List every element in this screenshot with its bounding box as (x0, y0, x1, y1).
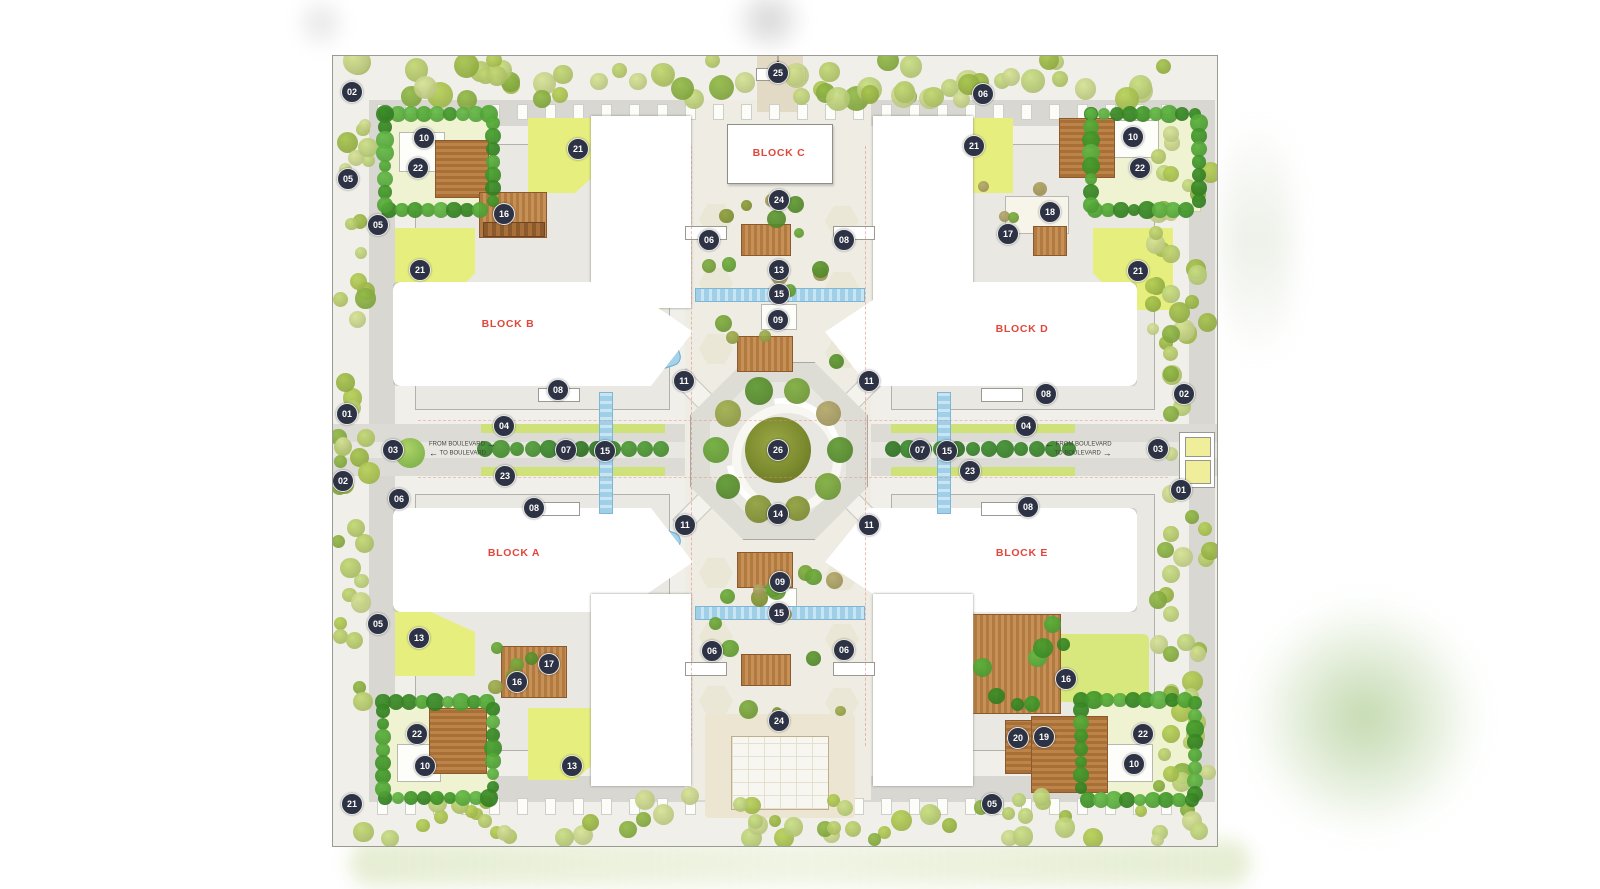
marker-10: 10 (1122, 126, 1144, 148)
tree-icon (1192, 194, 1205, 207)
tree-icon (1074, 742, 1087, 755)
tree-icon (1201, 542, 1218, 561)
tree-icon (336, 373, 355, 392)
marker-05: 05 (337, 168, 359, 190)
east-gatehouse (1185, 460, 1211, 484)
axis-dashed-line (865, 146, 866, 746)
marker-11: 11 (673, 370, 695, 392)
tree-icon (377, 718, 389, 730)
tree-icon (1002, 807, 1015, 820)
pavilion-deck (1033, 226, 1067, 256)
marker-06: 06 (698, 229, 720, 251)
axis-dashed-line (418, 420, 1168, 421)
marker-03: 03 (1147, 438, 1169, 460)
tree-icon (1188, 696, 1202, 710)
tree-icon (920, 804, 940, 824)
parking-stall (769, 104, 780, 120)
tree-icon (480, 789, 497, 806)
tree-icon (404, 791, 418, 805)
tree-icon (555, 828, 574, 847)
marker-25: 25 (767, 62, 789, 84)
tree-icon (497, 825, 513, 841)
tree-icon (1162, 725, 1180, 743)
arrow-right-icon: → (1103, 448, 1112, 458)
marker-02: 02 (341, 81, 363, 103)
tree-icon (353, 822, 374, 843)
tree-icon (653, 804, 674, 825)
tree-icon (973, 658, 992, 677)
tree-icon (805, 569, 821, 585)
tree-icon (353, 692, 373, 712)
tree-icon (1192, 155, 1205, 168)
marker-13: 13 (561, 755, 583, 777)
tree-icon (1033, 638, 1053, 658)
tree-icon (1075, 756, 1087, 768)
tree-icon (739, 700, 758, 719)
tree-icon (333, 292, 348, 307)
tree-icon (1163, 606, 1179, 622)
tree-icon (1013, 826, 1033, 846)
marker-05: 05 (981, 793, 1003, 815)
marker-24: 24 (768, 189, 790, 211)
tree-icon (636, 812, 651, 827)
tree-icon (923, 87, 944, 108)
marker-22: 22 (1129, 157, 1151, 179)
marker-18: 18 (1039, 201, 1061, 223)
west-out-text: TO BOULEVARD (440, 450, 486, 456)
tree-icon (1033, 788, 1050, 805)
median-planting (891, 424, 1075, 433)
garden-deck (435, 140, 489, 198)
tree-icon (340, 558, 360, 578)
tree-icon (722, 257, 737, 272)
tree-icon (1018, 808, 1033, 823)
tree-icon (1158, 748, 1171, 761)
tree-icon (629, 73, 647, 91)
block-b-tower-wing (591, 116, 691, 308)
tree-icon (351, 592, 372, 613)
tree-icon (376, 704, 389, 717)
entrance-canopy (833, 662, 875, 676)
tree-icon (1175, 107, 1189, 121)
tree-icon (1163, 526, 1178, 541)
marker-15: 15 (594, 440, 616, 462)
marker-21: 21 (409, 259, 431, 281)
parking-stall (713, 104, 724, 120)
marker-08: 08 (523, 497, 545, 519)
arrow-left-icon: ← (429, 448, 438, 458)
tree-icon (835, 706, 845, 716)
tree-icon (1162, 285, 1179, 302)
tree-icon (1177, 634, 1194, 651)
tree-icon (1073, 767, 1088, 782)
tree-icon (735, 72, 756, 93)
tree-icon (861, 85, 880, 104)
tree-icon (1021, 69, 1045, 93)
background-blur-gray (724, 0, 814, 50)
marker-15: 15 (936, 440, 958, 462)
parking-stall (517, 798, 528, 815)
axis-dashed-line (691, 146, 692, 746)
tree-icon (510, 442, 524, 456)
tree-icon (1156, 59, 1171, 74)
block-label-b: BLOCK B (482, 318, 535, 330)
parking-stall (1049, 798, 1060, 815)
tree-icon (488, 680, 502, 694)
marker-17: 17 (997, 223, 1019, 245)
axis-dashed-line (418, 477, 1168, 478)
tree-icon (491, 642, 503, 654)
tree-icon (1162, 325, 1180, 343)
tree-icon (582, 814, 599, 831)
garden-pergola (483, 222, 545, 237)
marker-10: 10 (413, 127, 435, 149)
tree-icon (816, 401, 841, 426)
parking-stall (741, 104, 752, 120)
tree-icon (355, 247, 367, 259)
marker-03: 03 (382, 439, 404, 461)
tree-icon (812, 261, 829, 278)
marker-13: 13 (408, 627, 430, 649)
tree-icon (827, 437, 852, 462)
marker-08: 08 (833, 229, 855, 251)
parking-stall (601, 798, 612, 815)
tree-icon (767, 210, 785, 228)
tree-icon (741, 200, 752, 211)
tree-icon (414, 76, 437, 99)
tree-icon (1185, 793, 1198, 806)
tree-icon (815, 473, 841, 499)
tree-icon (1162, 565, 1180, 583)
marker-02: 02 (332, 470, 354, 492)
marker-08: 08 (1017, 496, 1039, 518)
marker-10: 10 (1123, 753, 1145, 775)
west-entry-label: FROM BOULEVARD → ← TO BOULEVARD (429, 440, 496, 457)
marker-09: 09 (769, 571, 791, 593)
tree-icon (785, 496, 810, 521)
marker-13: 13 (768, 259, 790, 281)
marker-06: 06 (833, 639, 855, 661)
courtyard-pergola (741, 224, 791, 256)
tree-icon (1083, 828, 1103, 847)
block-label-d: BLOCK D (996, 323, 1049, 335)
parking-stall (993, 104, 1004, 120)
marker-21: 21 (567, 138, 589, 160)
marker-06: 06 (701, 640, 723, 662)
marker-19: 19 (1033, 726, 1055, 748)
tree-icon (1185, 510, 1199, 524)
garden-deck (429, 708, 487, 774)
tree-icon (769, 815, 781, 827)
block-a-tower-wing (591, 594, 691, 786)
tree-icon (868, 833, 881, 846)
tree-icon (894, 81, 915, 102)
tree-icon (637, 441, 653, 457)
marker-21: 21 (963, 135, 985, 157)
tree-icon (357, 429, 375, 447)
tree-icon (381, 830, 398, 847)
tree-icon (1151, 149, 1166, 164)
background-blur-gray-2 (296, 0, 346, 58)
tree-icon (753, 584, 765, 596)
tree-icon (1012, 793, 1026, 807)
marker-20: 20 (1007, 727, 1029, 749)
marker-23: 23 (494, 465, 516, 487)
tree-icon (346, 632, 363, 649)
marker-08: 08 (1035, 383, 1057, 405)
marker-11: 11 (858, 370, 880, 392)
tree-icon (996, 440, 1014, 458)
marker-21: 21 (341, 793, 363, 815)
tree-icon (1002, 68, 1020, 86)
marker-06: 06 (972, 83, 994, 105)
parking-stall (573, 798, 584, 815)
tree-icon (1057, 638, 1069, 650)
tree-icon (446, 202, 461, 217)
screenshot-stage: ↓ FROM BOULEVARD → ← TO BOULEVARD ← FROM… (0, 0, 1600, 889)
tree-icon (417, 791, 431, 805)
arrow-left-icon: ← (1045, 439, 1054, 449)
marker-24: 24 (768, 710, 790, 732)
tree-icon (392, 792, 404, 804)
tree-icon (358, 138, 378, 158)
tree-icon (1163, 646, 1179, 662)
tree-icon (334, 617, 347, 630)
tree-icon (1163, 366, 1179, 382)
tree-icon (900, 55, 922, 77)
tree-icon (1149, 591, 1167, 609)
marker-11: 11 (674, 514, 696, 536)
tree-icon (1033, 182, 1048, 197)
tree-icon (877, 55, 898, 71)
marker-07: 07 (909, 439, 931, 461)
marker-15: 15 (768, 283, 790, 305)
tree-icon (721, 640, 738, 657)
tree-icon (1190, 822, 1208, 840)
block-d-tower-wing (873, 116, 973, 308)
marker-02: 02 (1173, 383, 1195, 405)
tree-icon (1172, 793, 1185, 806)
marker-16: 16 (1055, 668, 1077, 690)
marker-10: 10 (414, 755, 436, 777)
marker-21: 21 (1127, 260, 1149, 282)
parking-stall (545, 798, 556, 815)
tree-icon (827, 821, 841, 835)
entrance-canopy (981, 388, 1023, 402)
tree-icon (1044, 616, 1060, 632)
tree-icon (430, 791, 443, 804)
block-label-e: BLOCK E (996, 547, 1048, 559)
block-e-tower-wing (873, 594, 973, 786)
marker-22: 22 (407, 157, 429, 179)
tree-icon (719, 209, 733, 223)
tree-icon (1162, 245, 1179, 262)
east-gatehouse (1185, 437, 1211, 457)
tree-icon (885, 441, 901, 457)
tree-icon (486, 702, 499, 715)
tree-icon (619, 821, 637, 839)
tree-icon (794, 228, 804, 238)
tree-icon (621, 441, 636, 456)
tree-icon (355, 288, 375, 308)
tree-icon (635, 790, 655, 810)
tree-icon (1011, 698, 1024, 711)
tree-icon (1198, 313, 1217, 332)
tree-icon (485, 180, 500, 195)
tree-icon (716, 474, 740, 498)
marker-04: 04 (493, 415, 515, 437)
tree-icon (345, 218, 357, 230)
marker-14: 14 (767, 503, 789, 525)
block-label-c: BLOCK C (753, 147, 806, 159)
courtyard-pergola (741, 654, 791, 686)
tree-icon (845, 821, 861, 837)
tree-icon (336, 437, 350, 451)
tree-icon (416, 819, 430, 833)
tree-icon (375, 781, 391, 797)
tree-icon (715, 400, 741, 426)
tree-icon (726, 331, 739, 344)
marker-26: 26 (767, 439, 789, 461)
marker-11: 11 (858, 514, 880, 536)
marker-23: 23 (959, 460, 981, 482)
tree-icon (1055, 817, 1076, 838)
parking-stall (517, 104, 528, 120)
tree-icon (1113, 202, 1128, 217)
tree-icon (703, 437, 729, 463)
tree-icon (1188, 265, 1207, 284)
marker-05: 05 (367, 214, 389, 236)
tree-icon (533, 90, 550, 107)
tree-icon (891, 810, 912, 831)
tree-icon (358, 462, 379, 483)
tree-icon (553, 65, 573, 85)
parking-stall (909, 798, 920, 815)
marker-05: 05 (367, 613, 389, 635)
tree-icon (942, 818, 957, 833)
marker-01: 01 (336, 403, 358, 425)
tree-icon (819, 62, 839, 82)
tree-icon (334, 455, 347, 468)
tree-icon (1083, 197, 1098, 212)
tree-icon (590, 73, 608, 91)
marker-06: 06 (388, 488, 410, 510)
tree-icon (332, 535, 345, 548)
tree-icon (784, 817, 804, 837)
marker-09: 09 (767, 309, 789, 331)
tree-icon (681, 787, 699, 805)
tree-icon (1191, 180, 1206, 195)
marker-22: 22 (406, 723, 428, 745)
marker-04: 04 (1015, 415, 1037, 437)
tree-icon (709, 75, 734, 100)
tree-icon (485, 753, 500, 768)
tree-icon (375, 729, 390, 744)
marker-01: 01 (1170, 479, 1192, 501)
tree-icon (1075, 78, 1097, 100)
marker-16: 16 (506, 671, 528, 693)
tree-icon (1151, 834, 1164, 847)
marker-17: 17 (538, 653, 560, 675)
east-out-text: TO BOULEVARD (1054, 450, 1100, 456)
tree-icon (806, 651, 820, 665)
marker-22: 22 (1132, 723, 1154, 745)
arrow-right-icon: → (487, 439, 496, 449)
background-blur-green-2 (1222, 70, 1292, 410)
marker-07: 07 (555, 439, 577, 461)
tree-icon (1052, 71, 1068, 87)
parking-stall (881, 798, 892, 815)
tree-icon (478, 814, 491, 827)
marker-15: 15 (768, 602, 790, 624)
median-planting (891, 467, 1075, 476)
background-blur-green (1250, 595, 1480, 840)
tree-icon (1149, 226, 1163, 240)
tree-icon (988, 688, 1005, 705)
parking-stall (573, 104, 584, 120)
parking-stall (1021, 104, 1032, 120)
site-plan: ↓ FROM BOULEVARD → ← TO BOULEVARD ← FROM… (332, 55, 1218, 847)
east-entry-label: ← FROM BOULEVARD TO BOULEVARD → (1045, 440, 1112, 457)
tree-icon (745, 377, 773, 405)
marker-08: 08 (547, 379, 569, 401)
tree-icon (349, 311, 366, 328)
tree-icon (612, 63, 627, 78)
tree-icon (829, 354, 844, 369)
tree-icon (1135, 805, 1147, 817)
marker-16: 16 (493, 203, 515, 225)
tree-icon (1029, 441, 1045, 457)
tree-icon (1147, 323, 1159, 335)
parking-stall (797, 104, 808, 120)
tree-icon (705, 55, 720, 68)
block-label-a: BLOCK A (488, 547, 540, 559)
tree-icon (1163, 126, 1178, 141)
